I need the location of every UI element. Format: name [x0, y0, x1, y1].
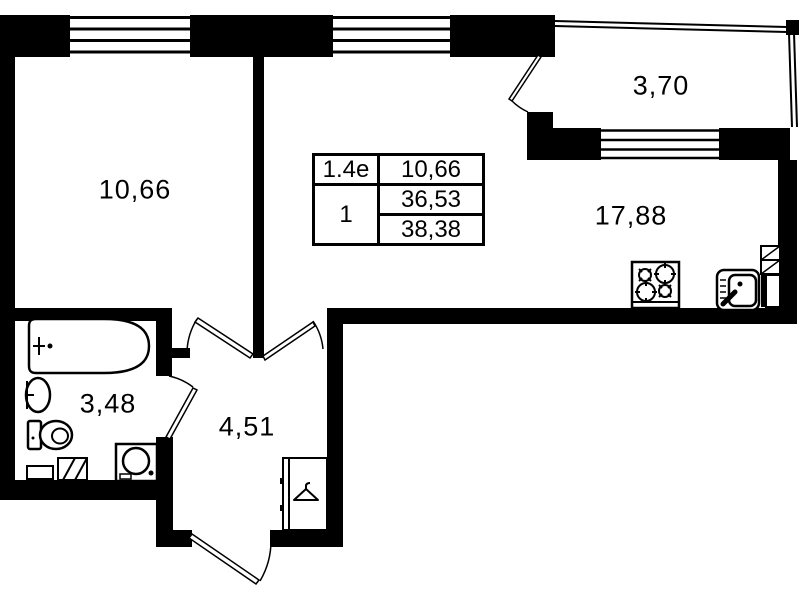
hallway-area-label: 4,51 — [219, 412, 276, 443]
vent-duct-niche — [766, 275, 780, 307]
bathtub-drain — [48, 344, 53, 349]
living-area-cell: 10,66 — [379, 155, 484, 185]
door-bathroom-leaf — [166, 388, 197, 439]
balcony-railing-top — [555, 21, 787, 32]
windows — [70, 18, 719, 159]
kitchen-sink-icon — [717, 270, 759, 310]
apartment-info-table: 1.4е 10,66 1 36,53 38,38 — [312, 153, 485, 246]
wall-balcony-bottom-left — [527, 128, 601, 160]
window-living-icon — [333, 18, 450, 53]
kitchen-area-label: 17,88 — [595, 201, 668, 232]
bathroom-area-label: 3,48 — [80, 389, 137, 420]
wall-hallway-left — [156, 437, 173, 547]
unit-type-cell: 1.4е — [314, 155, 379, 185]
room-count-cell: 1 — [314, 185, 379, 245]
wall-top-right — [450, 15, 555, 57]
window-room-icon — [70, 18, 190, 53]
door-entrance-leaf — [189, 534, 259, 584]
ventilation-shaft-icon — [761, 246, 780, 307]
washing-machine-knob — [149, 471, 154, 476]
wall-top-middle — [190, 15, 333, 57]
area-without-balcony-cell: 36,53 — [379, 185, 484, 215]
total-area-cell: 38,38 — [379, 215, 484, 245]
table-row: 1 36,53 — [314, 185, 484, 215]
wall-hallway-bottom-right — [270, 530, 343, 547]
balcony-railing-right — [789, 33, 797, 127]
balcony-area-label: 3,70 — [633, 71, 690, 102]
washing-machine-icon — [116, 444, 157, 481]
door-balcony-arc — [512, 101, 528, 112]
room-area-label: 10,66 — [99, 175, 172, 206]
door-room-arc — [187, 319, 197, 351]
wardrobe-icon — [280, 458, 327, 530]
door-room-leaf — [195, 318, 253, 358]
washbasin-icon — [26, 378, 50, 412]
door-bathroom-arc — [169, 376, 193, 387]
door-entrance-arc — [260, 540, 271, 581]
bathtub-icon — [29, 319, 149, 373]
door-balcony-leaf — [509, 55, 541, 101]
floor-hatch — [58, 458, 87, 480]
wardrobe-hinge-bottom — [280, 505, 284, 511]
window-balcony-icon — [601, 131, 719, 159]
wall-hallway-right — [327, 308, 343, 547]
table-row: 1.4е 10,66 — [314, 155, 484, 185]
kitchen-sink-drain — [738, 282, 743, 287]
toilet-tank-button — [32, 437, 35, 440]
stove-icon — [632, 262, 679, 308]
wardrobe-hinge-top — [280, 478, 284, 484]
floor-plan: 10,66 3,70 17,88 3,48 4,51 1.4е 10,66 1 … — [0, 0, 799, 600]
bathtub-outline — [29, 319, 149, 373]
wall-left-exterior — [0, 15, 15, 500]
wall-bathroom-bottom — [0, 480, 156, 500]
wall-balcony-bottom-right — [719, 128, 790, 160]
wall-room-living-divider — [253, 57, 264, 358]
door-living-leaf — [263, 322, 315, 360]
toilet-icon — [28, 421, 72, 449]
wall-balcony-corner-block — [786, 20, 799, 35]
wall-bathroom-right-upper — [156, 308, 172, 376]
wall-niche — [27, 466, 53, 479]
